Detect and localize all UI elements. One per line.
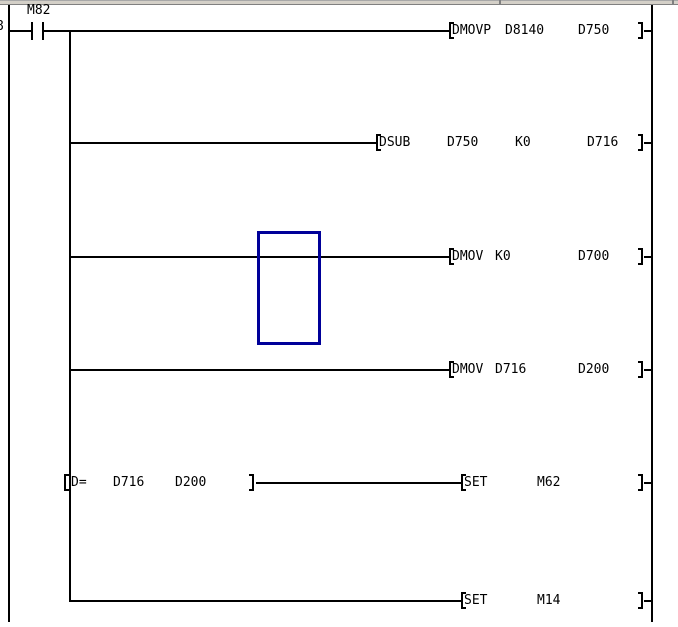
wire (10, 30, 31, 32)
step-number: 8 (0, 19, 4, 34)
instruction-operand[interactable]: D700 (578, 249, 609, 264)
contact-device-label: M82 (27, 3, 50, 18)
instruction-mnemonic[interactable]: DSUB (379, 135, 410, 150)
instruction-mnemonic[interactable]: DMOV (452, 249, 483, 264)
instruction-mnemonic[interactable]: DMOV (452, 362, 483, 377)
instruction-operand[interactable]: D200 (578, 362, 609, 377)
left-power-rail (8, 5, 10, 622)
splitter-tick (499, 0, 501, 5)
instruction-operand[interactable]: K0 (515, 135, 531, 150)
close-bracket (638, 134, 643, 151)
compare-operand[interactable]: D200 (175, 475, 206, 490)
wire (70, 600, 461, 602)
instruction-operand[interactable]: D716 (495, 362, 526, 377)
close-bracket (638, 22, 643, 39)
instruction-operand[interactable]: D750 (447, 135, 478, 150)
close-bracket (638, 592, 643, 609)
instruction-operand[interactable]: D750 (578, 23, 609, 38)
wire (70, 369, 449, 371)
open-bracket (64, 474, 69, 491)
close-bracket (638, 474, 643, 491)
window-top-edge (0, 0, 678, 5)
wire (644, 600, 651, 602)
instruction-mnemonic[interactable]: DMOVP (452, 23, 491, 38)
window-edge-tick (672, 0, 674, 5)
wire (644, 256, 651, 258)
close-bracket (249, 474, 254, 491)
instruction-operand[interactable]: D716 (587, 135, 618, 150)
wire (644, 30, 651, 32)
wire (644, 369, 651, 371)
compare-mnemonic[interactable]: D= (71, 475, 87, 490)
compare-operand[interactable]: D716 (113, 475, 144, 490)
right-power-rail (651, 5, 653, 622)
instruction-operand[interactable]: D8140 (505, 23, 544, 38)
wire (644, 142, 651, 144)
wire (256, 482, 461, 484)
instruction-mnemonic[interactable]: SET (464, 593, 487, 608)
close-bracket (638, 361, 643, 378)
instruction-operand[interactable]: M14 (537, 593, 560, 608)
edit-cursor[interactable] (257, 231, 321, 345)
branch-vertical-wire (69, 30, 71, 602)
instruction-operand[interactable]: M62 (537, 475, 560, 490)
instruction-mnemonic[interactable]: SET (464, 475, 487, 490)
close-bracket (638, 248, 643, 265)
wire (70, 142, 376, 144)
ladder-editor-pane[interactable]: 8 M82 DMOVP D8140 D750 DSUB D750 K0 D716… (0, 0, 678, 627)
wire (44, 30, 449, 32)
wire (644, 482, 651, 484)
no-contact-bar-left[interactable] (31, 22, 33, 40)
instruction-operand[interactable]: K0 (495, 249, 511, 264)
